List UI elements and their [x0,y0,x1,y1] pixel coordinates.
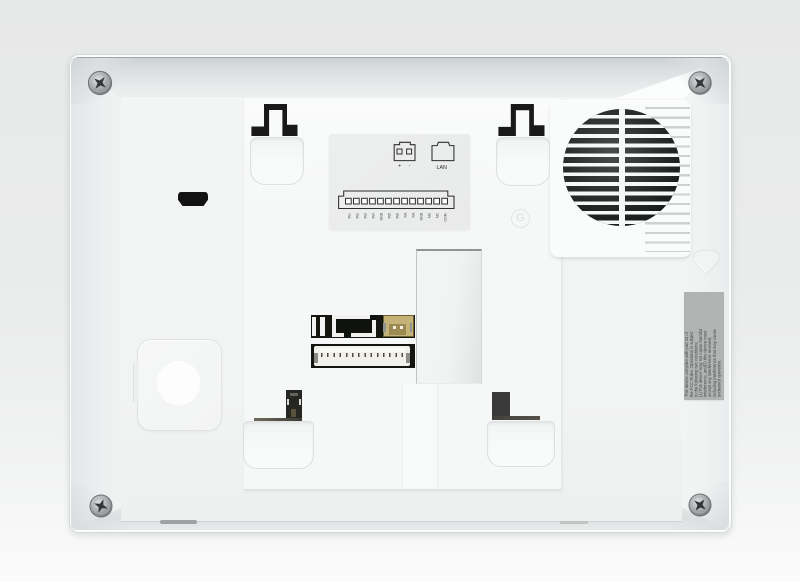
svg-text:+: + [398,164,401,170]
svg-text:NA: NA [404,212,408,218]
svg-text:IN5: IN5 [387,213,391,219]
svg-text:NO: NO [428,212,432,218]
svg-text:IN2: IN2 [355,213,359,219]
svg-text:IN1: IN1 [347,213,351,219]
svg-text:LAN: LAN [437,165,447,171]
svg-text:IN4: IN4 [371,213,375,219]
svg-text:GND: GND [379,212,383,220]
svg-text:IN6: IN6 [396,213,400,219]
svg-text:GND: GND [420,212,424,220]
svg-text:COM: COM [444,213,448,221]
svg-text:-: - [409,163,411,169]
svg-text:NC: NC [436,212,440,218]
svg-text:IN3: IN3 [363,213,367,219]
svg-text:NA: NA [412,212,416,218]
svg-text:undesired operation.: undesired operation. [716,360,721,397]
